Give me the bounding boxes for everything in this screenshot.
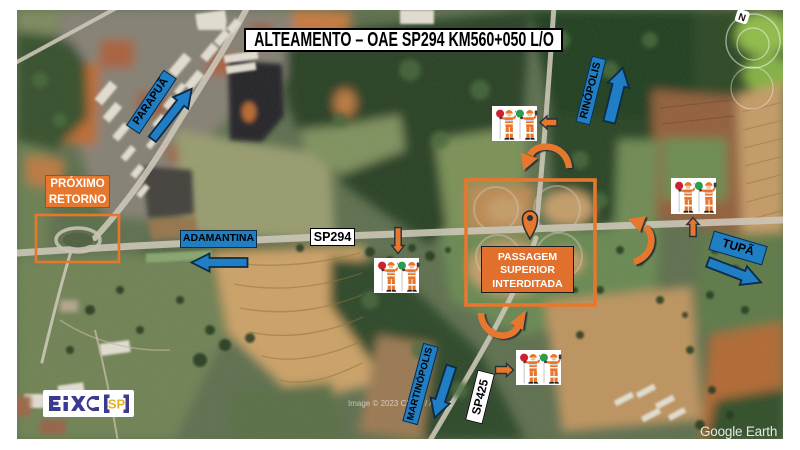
svg-text:SP: SP xyxy=(108,397,126,412)
